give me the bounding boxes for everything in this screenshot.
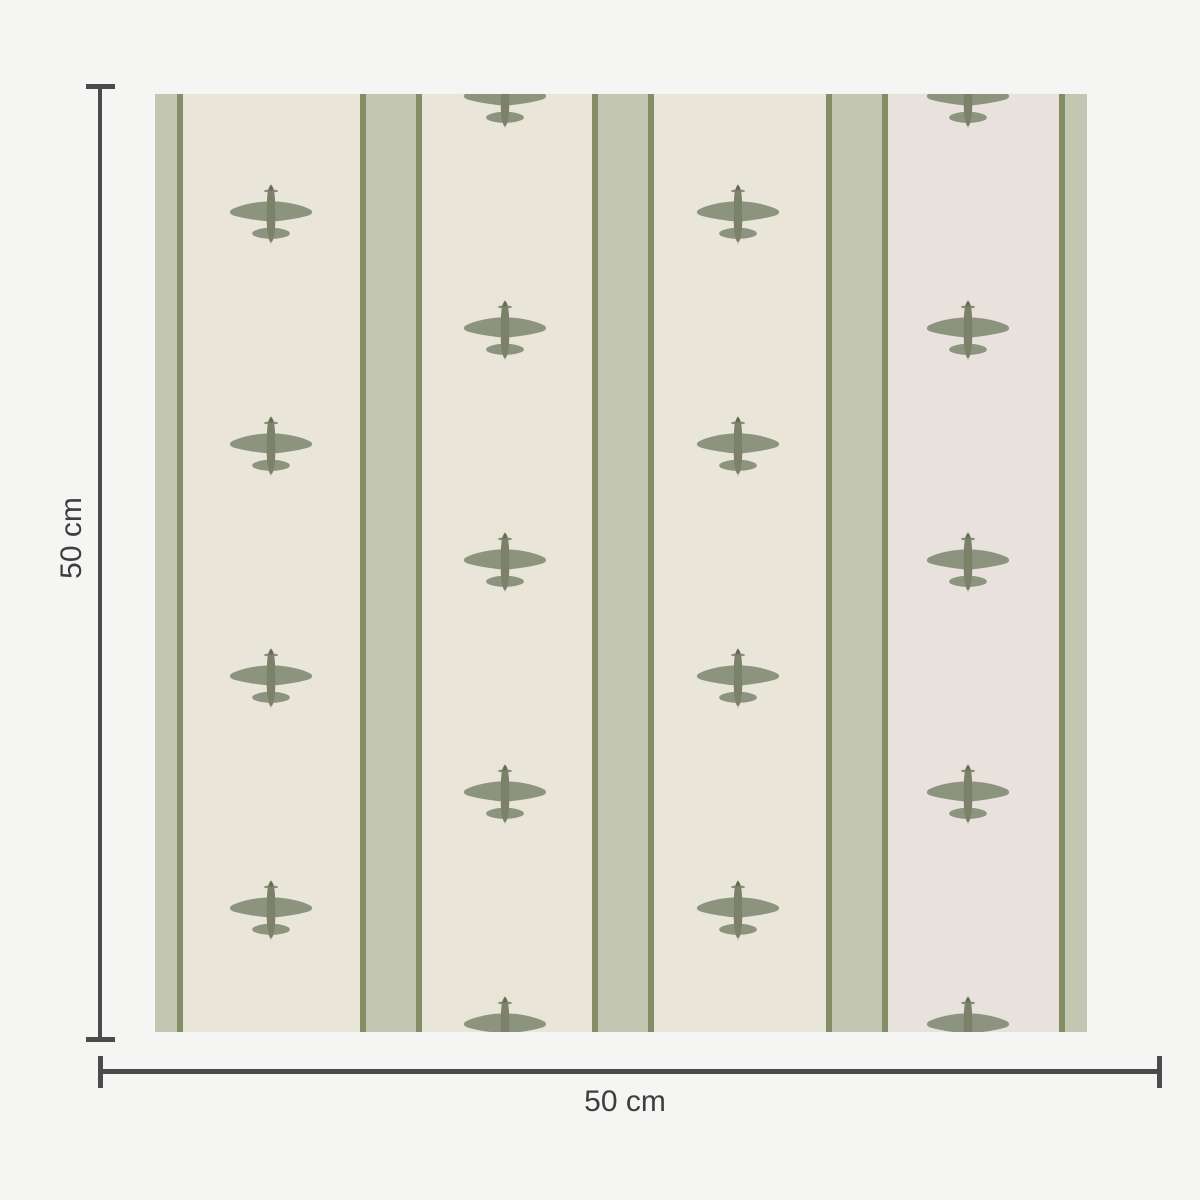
airplane-icon [924, 94, 1012, 129]
airplane-icon [461, 299, 549, 361]
airplane-icon [924, 531, 1012, 593]
airplane-icon [461, 531, 549, 593]
height-dimension-cap-top [86, 84, 115, 89]
width-dimension-line [100, 1069, 1160, 1074]
airplane-icon [924, 995, 1012, 1032]
airplane-icon [694, 183, 782, 245]
airplane-icon [694, 415, 782, 477]
airplane-icon [924, 763, 1012, 825]
height-dimension-cap-bottom [86, 1037, 115, 1042]
height-dimension-line [98, 86, 102, 1039]
airplane-icon [461, 763, 549, 825]
width-dimension-cap-right [1157, 1056, 1162, 1088]
wallpaper-swatch [155, 94, 1087, 1032]
stripe [155, 94, 183, 1032]
airplane-icon [461, 94, 549, 129]
width-label: 50 cm [584, 1087, 666, 1117]
product-dimension-diagram: 50 cm 50 cm [0, 0, 1200, 1200]
airplane-icon [227, 647, 315, 709]
height-label: 50 cm [57, 497, 87, 579]
airplane-icon [694, 879, 782, 941]
width-dimension-cap-left [98, 1056, 103, 1088]
airplane-icon [227, 415, 315, 477]
airplane-icon [694, 647, 782, 709]
stripe [1059, 94, 1087, 1032]
stripe [360, 94, 422, 1032]
airplane-icon [924, 299, 1012, 361]
airplane-icon [227, 183, 315, 245]
airplane-icon [461, 995, 549, 1032]
stripe [592, 94, 654, 1032]
stripe [826, 94, 888, 1032]
airplane-icon [227, 879, 315, 941]
